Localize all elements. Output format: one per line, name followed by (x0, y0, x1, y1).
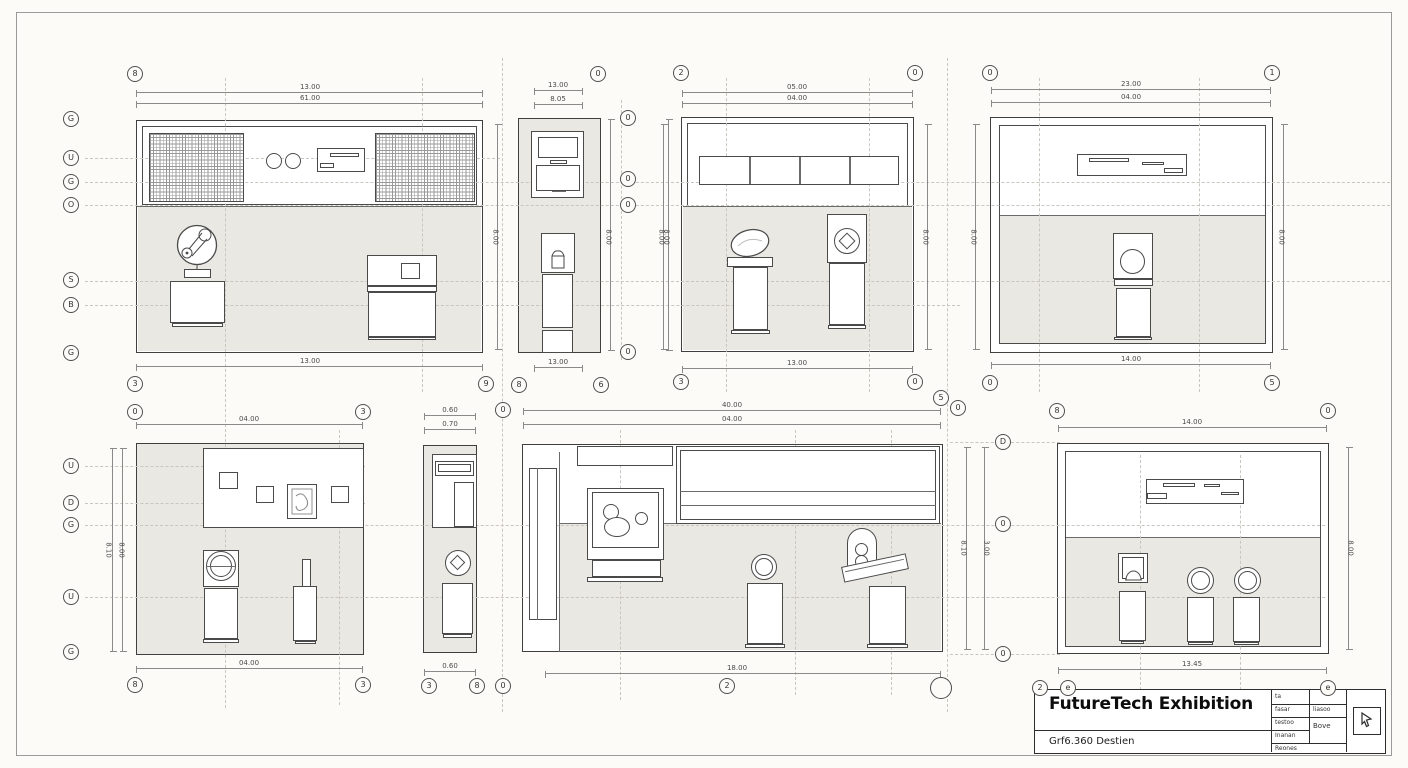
grid-bubble: 3 (127, 376, 143, 392)
grid-bubble: G (63, 345, 79, 361)
egg-exhibit (728, 224, 772, 260)
centerline-v (502, 58, 503, 712)
dim-label-v: 8.00 (492, 229, 499, 245)
sheet-subtitle: Grf6.360 Destien (1049, 736, 1259, 747)
grid-bubble: 6 (593, 377, 609, 393)
window-mullion (849, 157, 851, 184)
grid-bubble: 8 (469, 678, 485, 694)
grid-bubble: e (1320, 680, 1336, 696)
pedestal (1119, 591, 1146, 641)
centerline-v (726, 78, 727, 392)
grid-bubble: 3 (421, 678, 437, 694)
dim-label-v: 8.00 (922, 229, 929, 245)
dim-line (534, 104, 583, 105)
cabinet-band (1114, 279, 1153, 286)
grid-bubble: 0 (620, 171, 636, 187)
dim-line (136, 103, 483, 104)
dim-label: 04.00 (239, 660, 259, 667)
dome-exhibit (1124, 567, 1143, 582)
dim-line (682, 92, 913, 93)
pedestal (442, 583, 473, 634)
dim-line (545, 673, 941, 674)
pedestal (869, 586, 906, 644)
panel-slot (330, 153, 359, 157)
pedestal-base (867, 644, 908, 648)
dim-label: 14.00 (1121, 356, 1141, 363)
table-cell: Reones (1275, 746, 1297, 752)
dim-label: 0.60 (442, 663, 458, 670)
dim-label: 18.00 (727, 665, 747, 672)
pot-exhibit (549, 248, 567, 271)
table-row-line (1271, 743, 1346, 744)
centerline-v (422, 78, 423, 392)
display-bar (550, 160, 567, 164)
grid-bubble: 0 (620, 344, 636, 360)
grid-bubble: 8 (127, 677, 143, 693)
pedestal (1233, 597, 1260, 642)
pedestal-base (295, 641, 316, 644)
dim-label-v: 8.00 (605, 229, 612, 245)
dim-line (424, 415, 476, 416)
sheet-title: FutureTech Exhibition (1049, 695, 1267, 714)
wall-line (1066, 537, 1320, 538)
pedestal-base (542, 330, 573, 353)
title-divider (1035, 730, 1271, 731)
exhibit-cube (401, 263, 420, 279)
grid-bubble: 0 (907, 65, 923, 81)
wall-joint (559, 452, 560, 652)
dim-label: 13.00 (300, 84, 320, 91)
dim-line (991, 89, 1271, 90)
pedestal-base (1188, 642, 1213, 645)
art-sketch (291, 488, 313, 515)
grid-bubble: 3 (673, 374, 689, 390)
grid-bubble: O (63, 197, 79, 213)
band-line (680, 491, 936, 492)
exhibit-ring-inner (755, 558, 773, 576)
pedestal (542, 274, 573, 328)
dim-label: 04.00 (787, 95, 807, 102)
grid-bubble: 0 (982, 375, 998, 391)
pedestal-base (745, 644, 785, 648)
pedestal (829, 263, 865, 325)
pedestal-cap (184, 269, 211, 278)
grid-bubble: 9 (478, 376, 494, 392)
panel-chip (320, 163, 334, 168)
window-mullion (749, 157, 751, 184)
pedestal-base (443, 634, 472, 638)
table-cell: Inanan (1275, 733, 1296, 739)
wall-line (137, 206, 482, 207)
panel-slot (1163, 483, 1195, 487)
dim-line (1058, 427, 1327, 428)
grid-bubble: 0 (495, 402, 511, 418)
grid-bubble: U (63, 458, 79, 474)
grid-bubble: 0 (590, 66, 606, 82)
table-cell: fasar (1275, 707, 1290, 713)
art-square (219, 472, 238, 489)
header-panel (577, 446, 673, 466)
dim-line (534, 90, 583, 91)
dim-line (523, 424, 941, 425)
dim-line (424, 429, 476, 430)
cabinet-base (368, 337, 436, 340)
dim-line (523, 410, 941, 411)
grid-bubble: 5 (1264, 375, 1280, 391)
drawing-sheet: 13.00 61.00 13.00 8.00 13.00 8.05 13.00 … (0, 0, 1408, 768)
window-mullion (799, 157, 801, 184)
dim-label: 23.00 (1121, 81, 1141, 88)
grid-bubble: e (1060, 680, 1076, 696)
grid-bubble: D (995, 434, 1011, 450)
table-cell: testoo (1275, 720, 1294, 726)
dim-label-v: 8.10 (960, 540, 967, 556)
exhibit-ring-inner (1238, 571, 1257, 590)
cabinet-body (368, 292, 436, 337)
dim-label: 13.45 (1182, 661, 1202, 668)
dim-label-v: 8.00 (658, 229, 665, 245)
panel-chip (1147, 493, 1167, 499)
display-stand (552, 191, 566, 192)
exhibit-sphere (1120, 249, 1145, 274)
dim-label: 04.00 (239, 416, 259, 423)
ring-axis (206, 566, 236, 567)
grid-bubble: 0 (127, 404, 143, 420)
grid-bubble: 0 (982, 65, 998, 81)
dim-label: 40.00 (722, 402, 742, 409)
display-panel (454, 482, 474, 527)
grid-bubble: G (63, 174, 79, 190)
grid-bubble: D (63, 495, 79, 511)
dim-label: 61.00 (300, 95, 320, 102)
robot-arm-exhibit (176, 224, 218, 272)
grid-bubble: 1 (1264, 65, 1280, 81)
dim-label-v: 8.00 (118, 542, 125, 558)
display-screen (536, 165, 580, 191)
stamp-box (1353, 707, 1381, 735)
grid-bubble: 3 (355, 404, 371, 420)
table-row-line (1271, 704, 1346, 705)
grid-bubble: 0 (907, 374, 923, 390)
dim-line (682, 103, 913, 104)
dim-label: 13.00 (548, 359, 568, 366)
grid-bubble: 5 (933, 390, 949, 406)
display-bar-inner (438, 464, 471, 472)
pedestal-base (203, 639, 239, 643)
pedestal-base (587, 577, 663, 582)
dim-label-v: 8.00 (970, 229, 977, 245)
grid-bubble: 3 (355, 677, 371, 693)
grid-bubble: U (63, 150, 79, 166)
dim-line (136, 424, 363, 425)
pedestal (1187, 597, 1214, 642)
pedestal-base (731, 330, 770, 334)
cursor-icon (1354, 708, 1379, 733)
table-cell: liasoo (1313, 707, 1330, 713)
dim-line (136, 92, 483, 93)
pedestal (170, 281, 225, 323)
dim-label: 04.00 (722, 416, 742, 423)
table-cell: ta (1275, 694, 1281, 700)
panel-chip (1221, 492, 1239, 495)
dim-label: 05.00 (787, 84, 807, 91)
pedestal-base (828, 325, 866, 329)
table-cell: Bove (1313, 723, 1331, 730)
grid-bubble: 0 (995, 516, 1011, 532)
centerline-v (1199, 78, 1200, 392)
bottle-exhibit (293, 586, 317, 641)
grid-bubble: U (63, 589, 79, 605)
band-line (680, 505, 936, 506)
pedestal-base (172, 323, 223, 327)
art-square (331, 486, 349, 503)
mesh-screen (375, 133, 475, 202)
grid-bubble: G (63, 517, 79, 533)
table-row-line (1271, 717, 1346, 718)
dim-line (424, 671, 476, 672)
centerline-v (621, 100, 622, 360)
grid-bubble: G (63, 644, 79, 660)
centerline-v (947, 58, 948, 712)
table-border (1346, 690, 1347, 752)
dim-line (136, 366, 483, 367)
grid-bubble: S (63, 272, 79, 288)
centerline-v (869, 78, 870, 392)
pedestal-base (1121, 641, 1144, 644)
wall-line (683, 206, 912, 207)
grid-bubble: 0 (995, 646, 1011, 662)
grid-bubble: 2 (1032, 680, 1048, 696)
dim-label: 0.60 (442, 407, 458, 414)
dim-label: 8.05 (550, 96, 566, 103)
art-square (256, 486, 274, 503)
dim-label-v: 8.00 (1278, 229, 1285, 245)
wall-dial (285, 153, 301, 169)
grid-bubble: G (63, 111, 79, 127)
dim-label-v: 8.00 (1347, 540, 1354, 556)
grid-bubble-empty (930, 677, 952, 699)
pedestal-base (1114, 337, 1152, 340)
pedestal (592, 560, 661, 577)
dim-label: 0.70 (442, 421, 458, 428)
panel-chip (1164, 168, 1183, 173)
grid-bubble: 0 (1320, 403, 1336, 419)
panel-slot (1204, 484, 1220, 487)
dim-label-v: 3.00 (983, 540, 990, 556)
grid-bubble: 0 (495, 678, 511, 694)
grid-bubble: 0 (620, 110, 636, 126)
pedestal (1116, 288, 1151, 337)
grid-bubble: B (63, 297, 79, 313)
grid-bubble: 0 (950, 400, 966, 416)
pedestal (747, 583, 783, 644)
exhibit-ring-inner (1191, 571, 1210, 590)
pedestal (204, 588, 238, 639)
grid-bubble: 0 (620, 197, 636, 213)
grid-bubble: 8 (1049, 403, 1065, 419)
panel-slot (1089, 158, 1129, 162)
pedestal-base (1234, 642, 1259, 645)
door-line (537, 468, 538, 620)
door-panel (529, 468, 557, 620)
dim-line (682, 368, 913, 369)
dim-label: 04.00 (1121, 94, 1141, 101)
grid-bubble: 8 (127, 66, 143, 82)
dim-label-v: 8.10 (105, 542, 112, 558)
dim-line (1058, 669, 1327, 670)
grid-bubble: 8 (511, 377, 527, 393)
exhibit-ellipse (604, 517, 630, 537)
dim-label: 13.00 (787, 360, 807, 367)
mesh-screen (149, 133, 244, 202)
bottle-neck (302, 559, 311, 587)
grid-bubble: 2 (719, 678, 735, 694)
exhibit-ring (635, 512, 648, 525)
display-screen (538, 137, 578, 158)
title-block: FutureTech Exhibition Grf6.360 Destien t… (1034, 689, 1386, 754)
centerline-h (85, 205, 1390, 206)
elevation-c-wall-fill (683, 207, 912, 350)
panel-slot (1142, 162, 1164, 165)
pedestal-cap (727, 257, 773, 267)
pedestal (733, 267, 768, 330)
window-band-inner (680, 450, 936, 520)
centerline-v (1039, 78, 1040, 392)
wall-dial (266, 153, 282, 169)
dim-line (991, 102, 1271, 103)
dim-line (136, 668, 363, 669)
control-panel (317, 148, 365, 172)
dim-line (991, 364, 1271, 365)
dim-label: 14.00 (1182, 419, 1202, 426)
dim-label: 13.00 (300, 358, 320, 365)
dim-label: 13.00 (548, 82, 568, 89)
grid-bubble: 2 (673, 65, 689, 81)
table-row-line (1271, 730, 1309, 731)
dim-line (534, 367, 583, 368)
